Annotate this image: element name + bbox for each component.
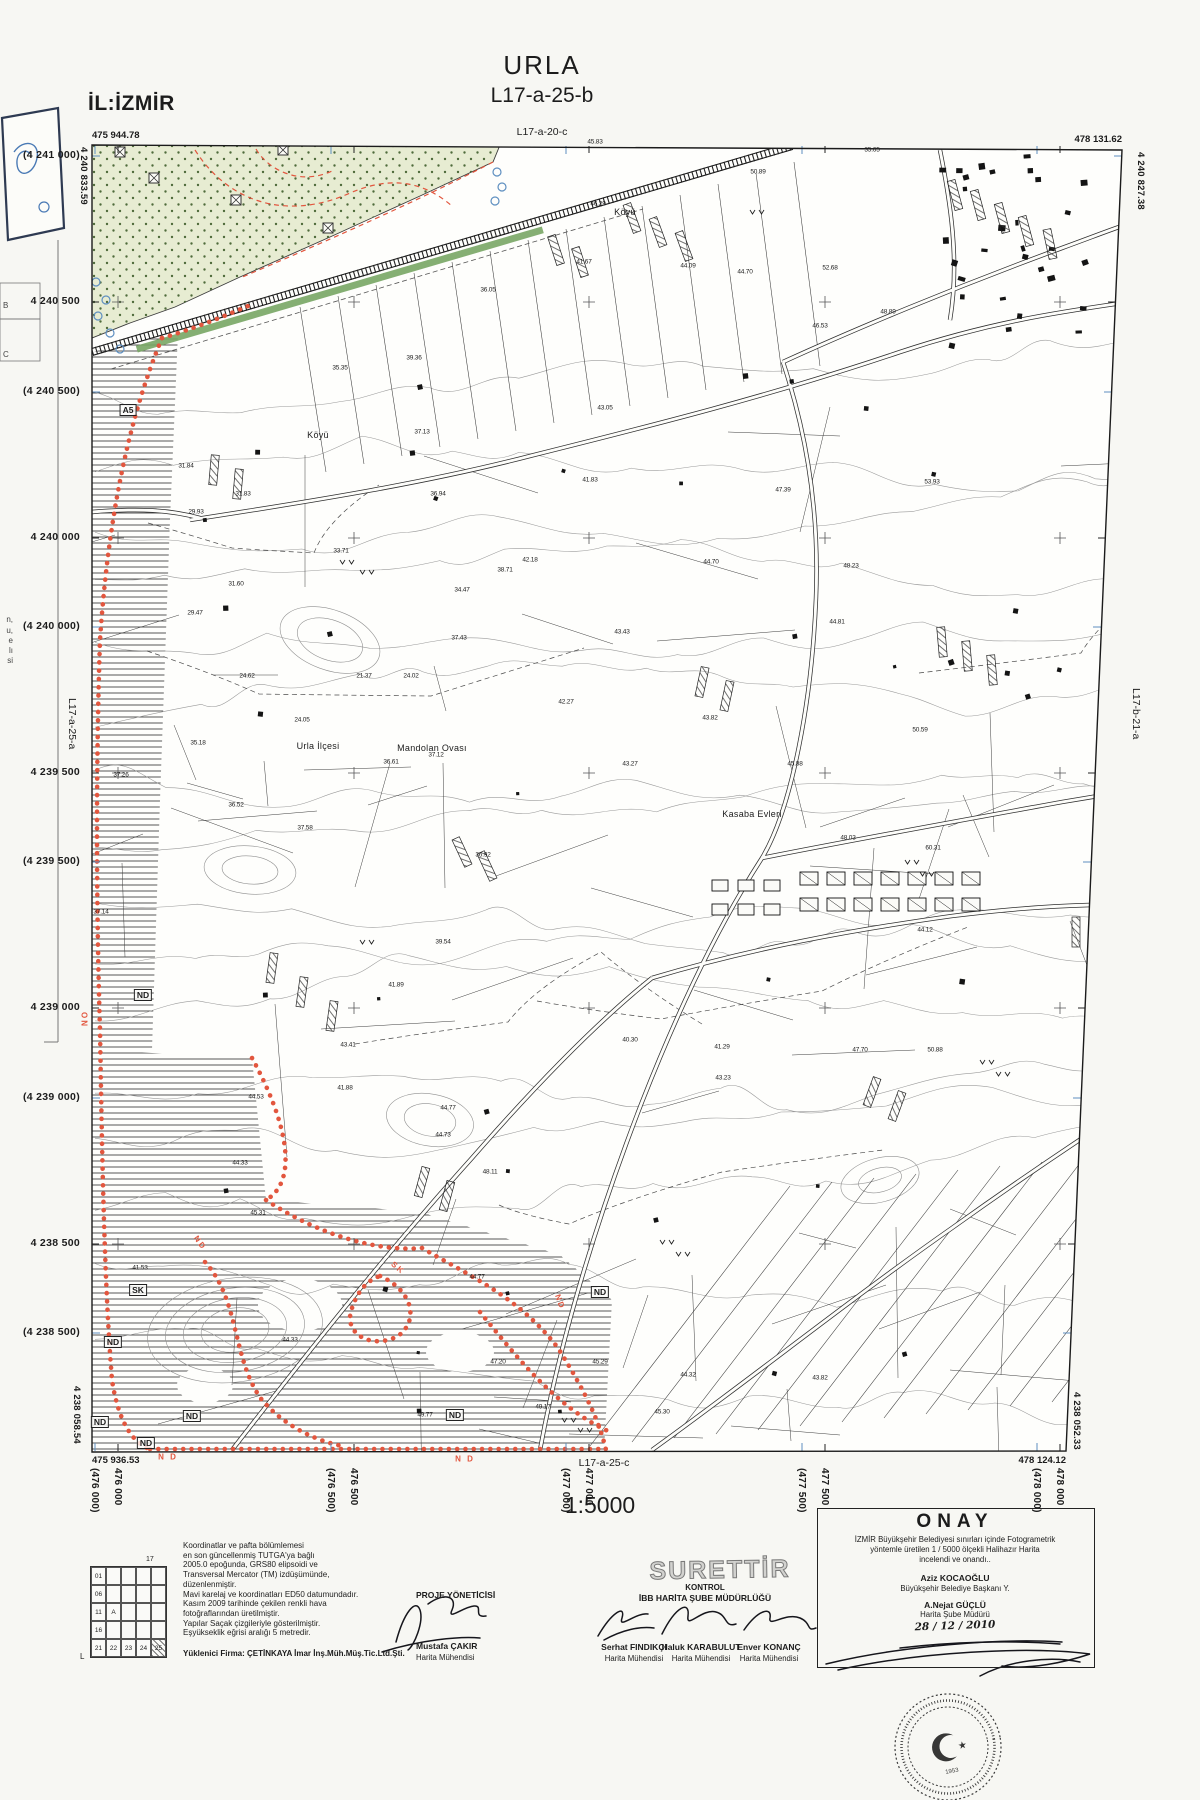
zone-box: ND: [591, 1286, 609, 1298]
spot-height: 41.53: [132, 1265, 147, 1272]
spot-height: 43.05: [597, 405, 612, 412]
grid-northing-label: (4 240 500): [0, 385, 80, 397]
spot-height: 37.58: [297, 825, 312, 832]
text-overlay: İL:İZMİR URLA L17-a-25-b L17-a-20-c 475 …: [0, 0, 1200, 1800]
spot-height: 35.18: [190, 740, 205, 747]
grid-northing-label: (4 239 000): [0, 1091, 80, 1103]
grid-northing-label: 4 239 500: [0, 766, 80, 778]
grid-easting-label: 476 500: [348, 1468, 359, 1506]
index-grid-corner-number: 17: [146, 1556, 154, 1563]
grid-northing-label: (4 241 000): [0, 149, 80, 161]
spot-height: 29.47: [187, 610, 202, 617]
spot-height: 44.09: [680, 263, 695, 270]
onay-approver-2-name: A.Nejat GÜÇLÜ: [817, 1600, 1093, 1610]
note-line: 2005.0 epoğunda, GRS80 elipsoidi ve: [183, 1560, 483, 1570]
project-manager-role: Harita Mühendisi: [416, 1653, 475, 1662]
index-grid-cell: [151, 1567, 166, 1585]
index-grid-cell: [106, 1621, 121, 1639]
red-boundary-label: ND: [553, 1293, 567, 1311]
spot-height: 48.23: [843, 563, 858, 570]
spot-height: 33.71: [333, 548, 348, 555]
zone-box: ND: [134, 989, 152, 1001]
spot-height: 49.17: [535, 1404, 550, 1411]
index-grid-cell: 23: [121, 1639, 136, 1657]
index-grid-cell: [136, 1603, 151, 1621]
kontrol-person-3-role: Harita Mühendisi: [726, 1654, 812, 1663]
spot-height: 50.89: [750, 169, 765, 176]
spot-height: 35.65: [864, 147, 879, 154]
index-grid-cell: [121, 1621, 136, 1639]
grid-easting-label: (477 000): [560, 1468, 571, 1513]
spot-height: 40.30: [622, 1037, 637, 1044]
clipped-text-fragment: u,: [0, 626, 13, 635]
spot-height: 45.29: [592, 1359, 607, 1366]
note-line: Transversal Mercator (TM) izdüşümünde,: [183, 1570, 483, 1580]
spot-height: 45.88: [787, 761, 802, 768]
spot-height: 38.71: [497, 567, 512, 574]
spot-height: 36.94: [430, 491, 445, 498]
kontrol-label: KONTROL: [605, 1583, 805, 1592]
onay-line-3: incelendi ve onandı..: [817, 1555, 1093, 1564]
spot-height: 44.33: [282, 1337, 297, 1344]
corner-easting-bl: 475 936.53: [92, 1455, 140, 1466]
grid-easting-label: (476 000): [89, 1468, 100, 1513]
note-line: fotoğraflarından üretilmiştir.: [183, 1609, 483, 1619]
spot-height: 47.70: [852, 1047, 867, 1054]
sheet-corner-coordinate: 4 240 833.59: [78, 147, 89, 205]
grid-easting-label: (478 000): [1031, 1468, 1042, 1513]
spot-height: 24.02: [403, 673, 418, 680]
spot-height: 44.73: [435, 1132, 450, 1139]
kontrol-person-3-name: Enver KONANÇ: [726, 1642, 812, 1652]
spot-height: 44.77: [469, 1274, 484, 1281]
index-grid-cell: 01: [91, 1567, 106, 1585]
zone-box: ND: [91, 1416, 109, 1428]
spot-height: 45.30: [654, 1409, 669, 1416]
grid-easting-label: 476 000: [112, 1468, 123, 1506]
spot-height: 31.83: [235, 491, 250, 498]
spot-height: 42.18: [522, 557, 537, 564]
spot-height: 48.11: [483, 1169, 498, 1176]
corner-easting-br: 478 124.12: [966, 1455, 1066, 1466]
spot-height: 45.31: [250, 1210, 265, 1217]
note-line: Yapılar Saçak çizgileriyle gösterilmişti…: [183, 1619, 483, 1629]
grid-northing-label: (4 239 500): [0, 855, 80, 867]
index-grid-cell: [106, 1567, 121, 1585]
sheet-corner-coordinate: 4 238 052.33: [1071, 1392, 1082, 1450]
grid-easting-label: 477 500: [819, 1468, 830, 1506]
place-label: Mandolan Ovası: [397, 743, 467, 753]
spot-height: 43.82: [812, 1375, 827, 1382]
spot-height: 44.33: [232, 1160, 247, 1167]
note-line: düzenlenmiştir.: [183, 1580, 483, 1590]
spot-height: 48.89: [880, 309, 895, 316]
spot-height: 47.39: [775, 487, 790, 494]
spot-height: 52.68: [822, 265, 837, 272]
spot-height: 46.53: [812, 323, 827, 330]
north-neighbor-sheet: L17-a-20-c: [492, 126, 592, 138]
spot-height: 36.52: [228, 802, 243, 809]
spot-height: 41.88: [337, 1085, 352, 1092]
index-grid-cell: 22: [106, 1639, 121, 1657]
spot-height: 41.83: [582, 477, 597, 484]
place-label: Köyü: [307, 430, 329, 440]
index-grid-cell: [151, 1603, 166, 1621]
onay-approver-1-name: Aziz KOCAOĞLU: [817, 1573, 1093, 1583]
map-sheet-page: ★1953 İL:İZMİR URLA L17-a-25-b L17-a-20-…: [0, 0, 1200, 1800]
map-scale: 1:5000: [535, 1492, 665, 1519]
zone-box: ND: [446, 1409, 464, 1421]
corner-easting-tl: 475 944.78: [92, 130, 140, 141]
place-label: Kasaba Evleri: [722, 809, 781, 819]
spot-height: 37.26: [113, 772, 128, 779]
sheet-corner-coordinate: L17-a-25-a: [66, 698, 78, 749]
red-boundary-label: N D: [158, 1453, 178, 1462]
spot-height: 37.13: [414, 429, 429, 436]
grid-northing-label: (4 238 500): [0, 1326, 80, 1338]
spot-height: 46.29: [590, 201, 605, 208]
spot-height: 43.82: [702, 715, 717, 722]
project-manager-name: Mustafa ÇAKIR: [416, 1641, 477, 1651]
spot-height: 24.05: [294, 717, 309, 724]
index-grid-cell: [136, 1567, 151, 1585]
spot-height: 41.67: [576, 259, 591, 266]
sheet-corner-coordinate: L17-b-21-a: [1130, 688, 1142, 739]
grid-northing-label: 4 240 500: [0, 295, 80, 307]
grid-easting-label: (477 500): [796, 1468, 807, 1513]
spot-height: 44.12: [917, 927, 932, 934]
index-grid-row-letter: L: [80, 1652, 84, 1661]
spot-height: 44.81: [829, 619, 844, 626]
spot-height: 47.20: [490, 1359, 505, 1366]
clipped-text-fragment: e: [0, 636, 13, 645]
index-grid-cell: [106, 1585, 121, 1603]
red-boundary-label: SK: [389, 1260, 406, 1277]
spot-height: 31.60: [228, 581, 243, 588]
spot-height: 41.89: [388, 982, 403, 989]
onay-line-1: İZMİR Büyükşehir Belediyesi sınırları iç…: [817, 1535, 1093, 1544]
place-label: Köyü: [614, 207, 636, 217]
spot-height: 37.43: [451, 635, 466, 642]
spot-height: 45.83: [587, 139, 602, 146]
index-grid-cell: [136, 1621, 151, 1639]
index-grid-cell: 16: [91, 1621, 106, 1639]
spot-height: 60.31: [925, 845, 940, 852]
spot-height: 50.88: [927, 1047, 942, 1054]
sheet-edge-label: C: [3, 350, 9, 359]
spot-height: 44.70: [703, 559, 718, 566]
zone-box: SK: [129, 1284, 147, 1296]
spot-height: 29.93: [188, 509, 203, 516]
index-grid-cell: 25: [151, 1639, 166, 1657]
spot-height: 37.14: [93, 909, 108, 916]
project-manager-title: PROJE YÖNETİCİSİ: [416, 1590, 495, 1600]
spot-height: 42.27: [558, 699, 573, 706]
spot-height: 21.37: [356, 673, 371, 680]
spot-height: 44.77: [440, 1105, 455, 1112]
spot-height: 36.05: [480, 287, 495, 294]
spot-height: 53.93: [924, 479, 939, 486]
zone-box: A5: [120, 404, 137, 416]
spot-height: 36.92: [475, 852, 490, 859]
index-grid-cell: 21: [91, 1639, 106, 1657]
index-grid-cell: 06: [91, 1585, 106, 1603]
spot-height: 35.35: [332, 365, 347, 372]
spot-height: 34.47: [454, 587, 469, 594]
spot-height: 24.62: [239, 673, 254, 680]
index-grid-cell: [121, 1603, 136, 1621]
spot-height: 36.61: [383, 759, 398, 766]
onay-line-2: yöntemle üretilen 1 / 5000 ölçekli Halih…: [817, 1545, 1093, 1554]
grid-easting-label: (476 500): [325, 1468, 336, 1513]
red-boundary-label: N D: [455, 1455, 475, 1464]
zone-box: ND: [137, 1437, 155, 1449]
spot-height: 43.41: [340, 1042, 355, 1049]
spot-height: 39.36: [406, 355, 421, 362]
spot-height: 48.03: [840, 835, 855, 842]
clipped-text-fragment: lı: [0, 646, 13, 655]
place-label: Urla İlçesi: [297, 741, 340, 751]
note-line: Eşyükseklik eğrisi aralığı 5 metredir.: [183, 1628, 483, 1638]
onay-title: ONAY: [817, 1511, 1093, 1533]
zone-box: ND: [183, 1410, 201, 1422]
spot-height: 43.23: [715, 1075, 730, 1082]
spot-height: 44.70: [737, 269, 752, 276]
province-label: İL:İZMİR: [88, 92, 175, 116]
spot-height: 44.53: [248, 1094, 263, 1101]
onay-approver-1-role: Büyükşehir Belediye Başkanı Y.: [817, 1584, 1093, 1593]
spot-height: 41.29: [714, 1044, 729, 1051]
spot-height: 43.43: [614, 629, 629, 636]
sheet-index-grid: 010611A162122232425: [90, 1566, 167, 1658]
grid-northing-label: 4 238 500: [0, 1237, 80, 1249]
clipped-text-fragment: si: [0, 656, 13, 665]
spot-height: 31.84: [178, 463, 193, 470]
index-grid-cell: 11: [91, 1603, 106, 1621]
zone-box: ND: [104, 1336, 122, 1348]
index-grid-cell: [151, 1585, 166, 1603]
grid-northing-label: 4 239 000: [0, 1001, 80, 1013]
index-grid-cell: 24: [136, 1639, 151, 1657]
spot-height: 50.59: [912, 727, 927, 734]
map-title: URLA: [442, 50, 642, 81]
sheet-corner-coordinate: 4 238 058.54: [71, 1386, 82, 1444]
note-line: Kasım 2009 tarihinde çekilen renkli hava: [183, 1599, 483, 1609]
index-grid-cell: A: [106, 1603, 121, 1621]
grid-easting-label: 478 000: [1054, 1468, 1065, 1506]
sheet-number: L17-a-25-b: [442, 84, 642, 108]
index-grid-cell: [151, 1621, 166, 1639]
spot-height: 43.27: [622, 761, 637, 768]
index-grid-cell: [121, 1585, 136, 1603]
spot-height: 44.32: [680, 1372, 695, 1379]
sheet-corner-coordinate: 4 240 827.38: [1135, 152, 1146, 210]
sheet-edge-label: B: [3, 301, 8, 310]
contractor-line: Yüklenici Firma: ÇETİNKAYA İmar İnş.Müh.…: [183, 1649, 405, 1658]
note-line: en son güncellenmiş TUTGA'ya bağlı: [183, 1551, 483, 1561]
spot-height: 49.77: [417, 1412, 432, 1419]
note-line: Koordinatlar ve pafta bölümlemesi: [183, 1541, 483, 1551]
spot-height: 39.54: [435, 939, 450, 946]
index-grid-cell: [121, 1567, 136, 1585]
grid-northing-label: 4 240 000: [0, 531, 80, 543]
grid-easting-label: 477 000: [583, 1468, 594, 1506]
clipped-text-fragment: n,: [0, 615, 13, 624]
red-boundary-label: ND: [192, 1234, 208, 1252]
corner-easting-tr: 478 131.62: [1022, 134, 1122, 145]
index-grid-cell: [136, 1585, 151, 1603]
kontrol-org: İBB HARİTA ŞUBE MÜDÜRLÜĞÜ: [605, 1593, 805, 1603]
red-boundary-label: ON: [80, 1012, 89, 1028]
